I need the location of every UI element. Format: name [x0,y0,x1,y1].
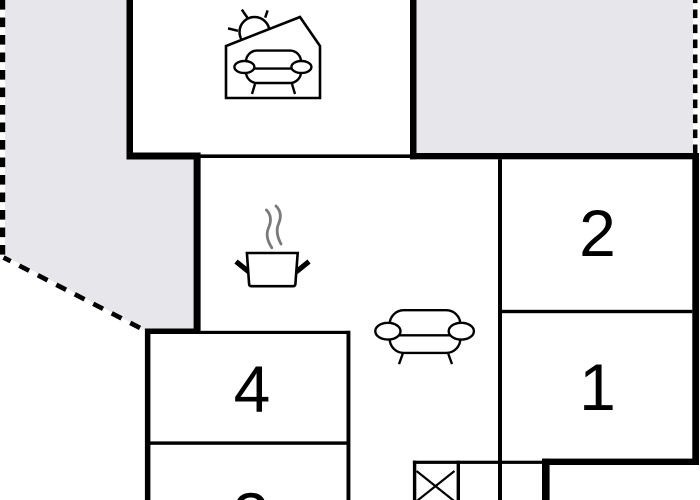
svg-text:3: 3 [233,479,270,500]
svg-text:4: 4 [234,352,271,426]
svg-text:1: 1 [579,350,616,424]
svg-text:2: 2 [579,196,616,270]
